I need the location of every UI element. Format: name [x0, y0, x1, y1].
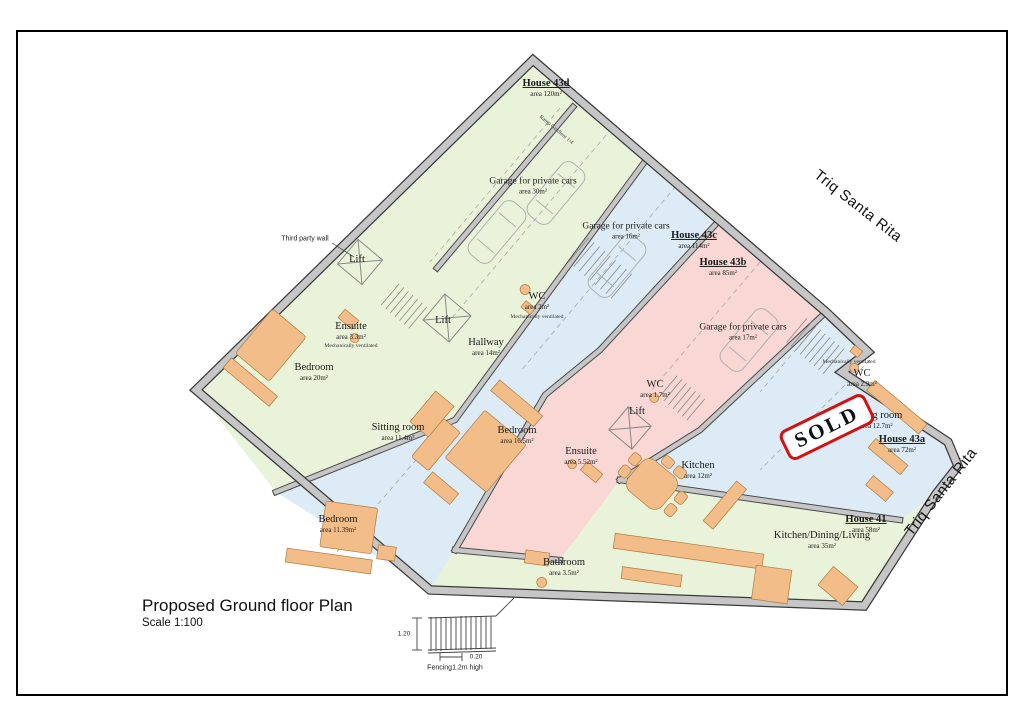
house-area: area 72m²	[879, 446, 925, 454]
room-label-lift-1: Lift	[349, 254, 365, 266]
plan-title: Proposed Ground floor Plan	[142, 596, 353, 616]
house-name: House 43d	[523, 78, 570, 90]
room-label-wc-17: WC area 1.7m²	[640, 379, 670, 399]
room-label-kitchen-dining-living: Kitchen/Dining/Living area 35m²	[774, 530, 870, 550]
house-area: area 120m²	[523, 90, 570, 98]
house-area: area 114m²	[671, 242, 717, 250]
mech-vent-note: Mechanically ventilated	[325, 343, 378, 349]
room-label-garage-16: Garage for private cars area 16m²	[582, 222, 669, 241]
room-label-ensuite-33: Ensuite area 3.3m²	[335, 321, 367, 341]
mech-vent-note: Mechanically ventilated	[511, 314, 564, 320]
room-label-kitchen-12: Kitchen area 12m²	[681, 460, 714, 480]
room-label-wc-2: WC area 2m²	[525, 291, 549, 311]
mech-vent-note: Mechanically ventilated	[823, 359, 876, 365]
room-label-sitting-room: Sitting room area 11.4m²	[372, 422, 425, 442]
fence-height-dimension: 1.20	[398, 631, 411, 638]
drawing-sheet: Triq Santa Rita Triq Santa Rita House 43…	[0, 0, 1024, 724]
house-area: area 85m²	[700, 269, 747, 277]
house-label-43b: House 43b area 85m²	[700, 257, 747, 277]
fence-legend-caption: Fencing1.2m high	[427, 665, 483, 672]
fence-spacing-dimension: 0.20	[470, 654, 483, 661]
room-label-bathroom: Bathroom area 3.5m²	[543, 557, 585, 577]
room-label-bedroom-1139: Bedroom area 11.39m²	[318, 514, 357, 534]
room-label-bedroom-20: Bedroom area 20m²	[294, 362, 333, 382]
room-label-lift-2: Lift	[435, 315, 451, 327]
room-label-bedroom-165: Bedroom area 16.5m²	[497, 425, 536, 445]
plan-scale: Scale 1:100	[142, 617, 203, 629]
room-label-wc-29: WC area 2.9m²	[847, 368, 877, 388]
house-label-43c: House 43c area 114m²	[671, 230, 717, 250]
room-label-garage-17: Garage for private cars area 17m²	[699, 323, 786, 342]
fence-legend-drawing	[412, 598, 514, 661]
house-name: House 43c	[671, 230, 717, 242]
house-name: House 43a	[879, 434, 925, 446]
room-label-lift-3: Lift	[629, 406, 645, 418]
house-label-43a: House 43a area 72m²	[879, 434, 925, 454]
house-name: House 43b	[700, 257, 747, 269]
house-name: House 41	[845, 514, 886, 526]
room-label-garage-30: Garage for private cars area 30m²	[489, 177, 576, 196]
third-party-wall-label: Third party wall	[281, 236, 328, 243]
room-label-ensuite-552: Ensuite area 5.52m²	[564, 446, 597, 466]
house-label-43d: House 43d area 120m²	[523, 78, 570, 98]
room-label-hallway: Hallway area 14m²	[468, 337, 504, 357]
